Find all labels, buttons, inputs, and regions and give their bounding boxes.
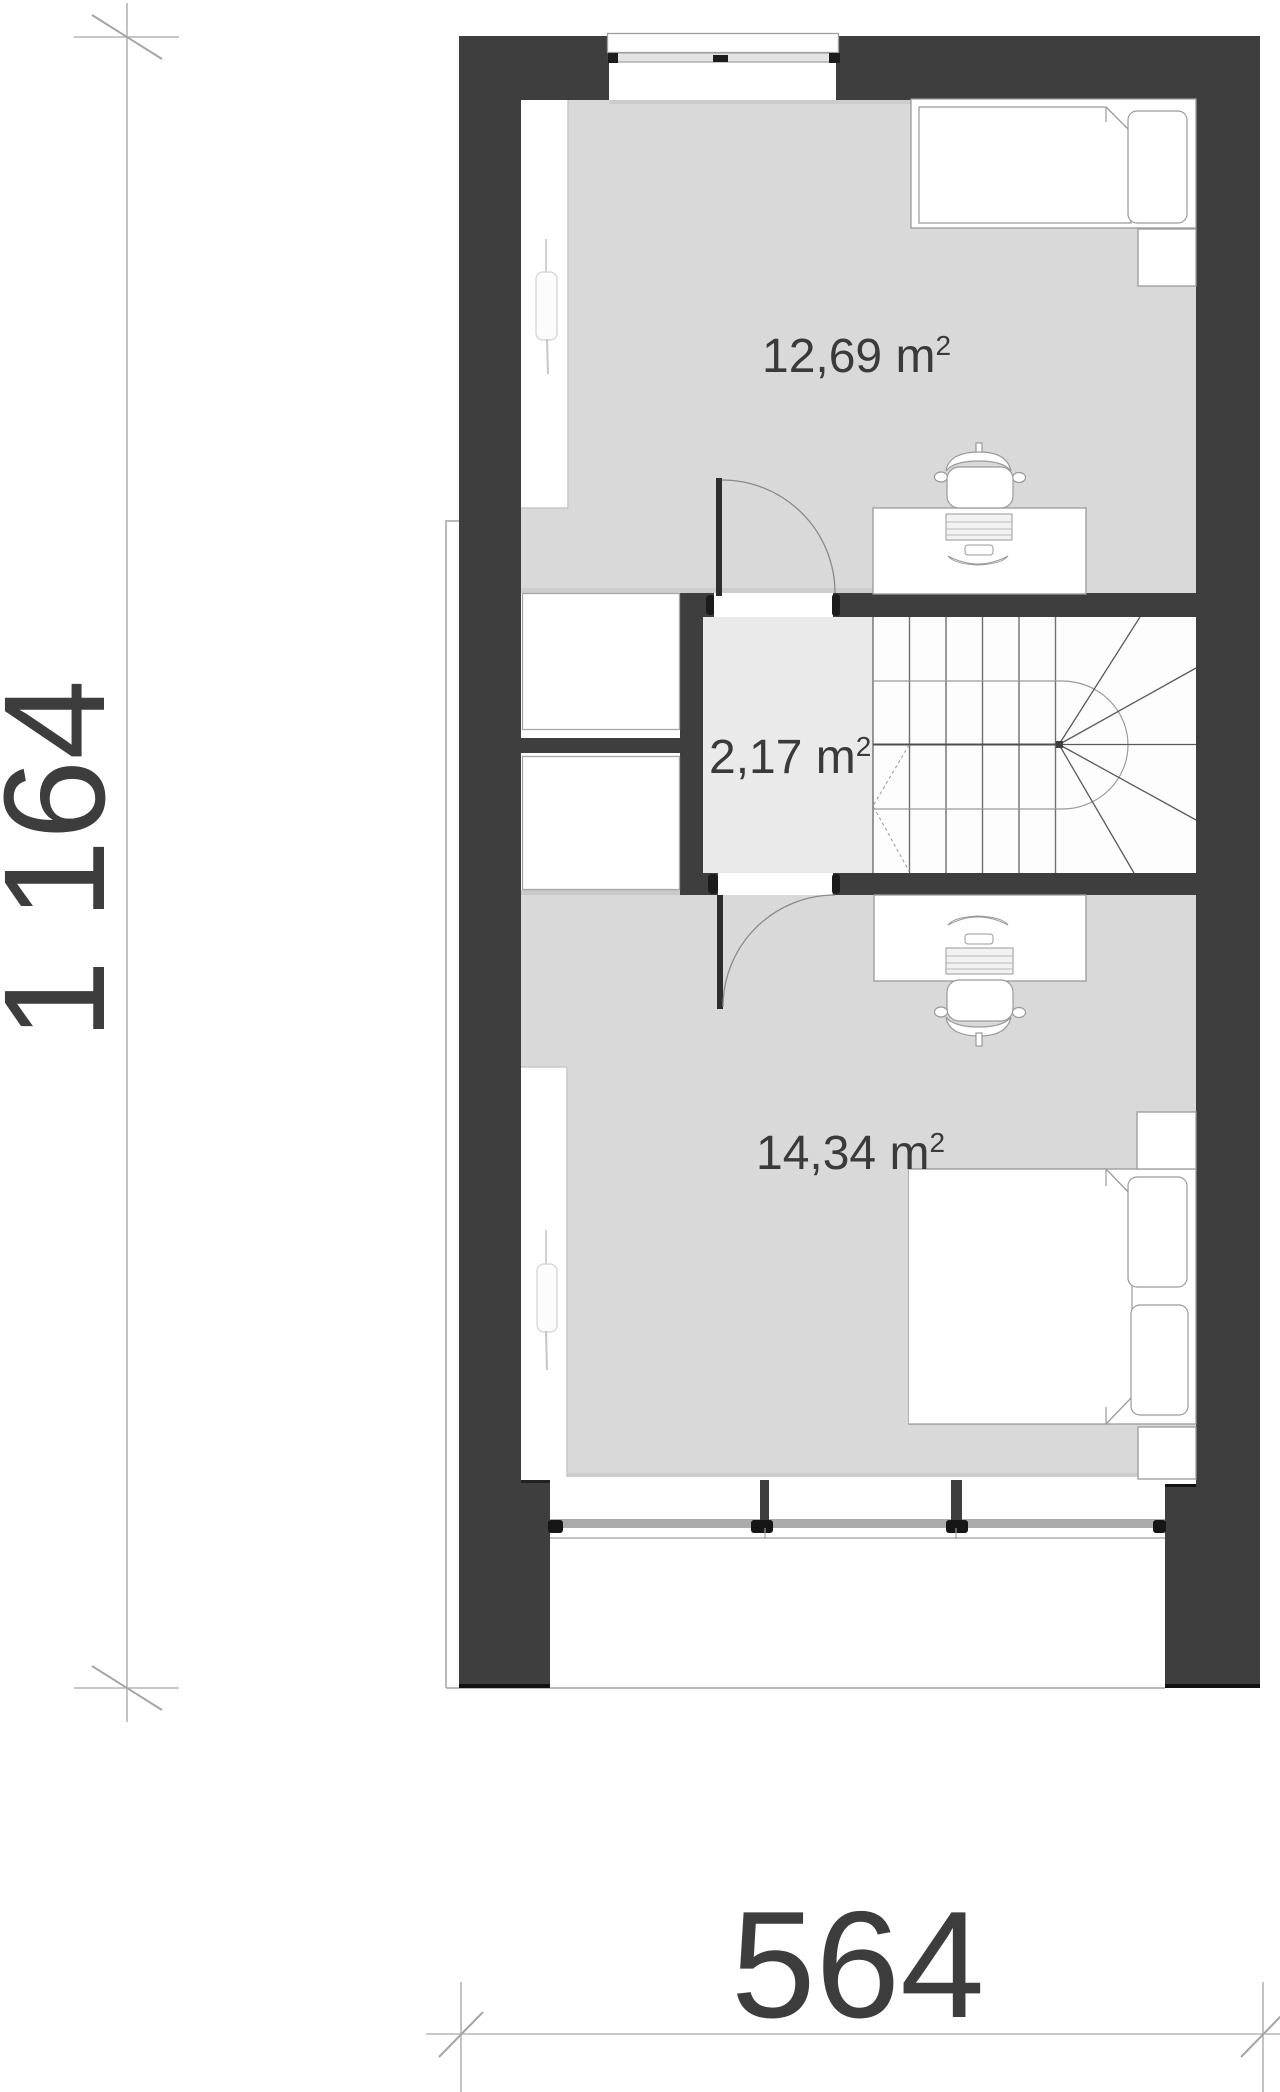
svg-text:564: 564: [731, 1880, 985, 2050]
svg-text:12,69 m2: 12,69 m2: [762, 330, 951, 383]
svg-text:2,17 m2: 2,17 m2: [709, 731, 871, 784]
svg-text:14,34 m2: 14,34 m2: [756, 1127, 945, 1180]
svg-text:1 164: 1 164: [0, 680, 135, 1040]
